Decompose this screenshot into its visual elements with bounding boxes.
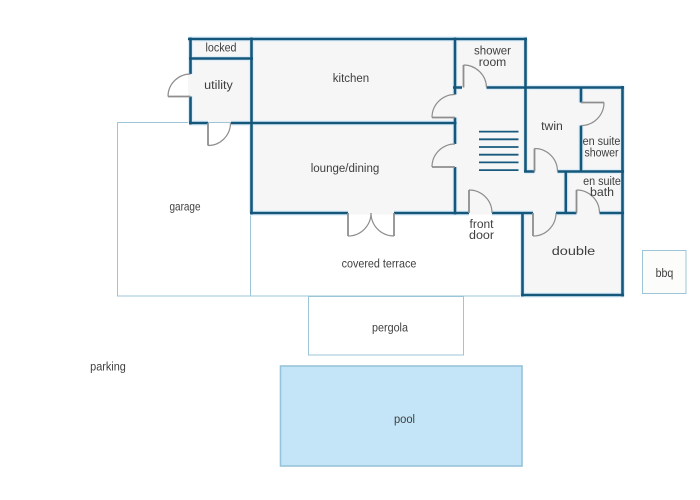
svg-text:pool: pool <box>394 412 415 426</box>
svg-text:bbq: bbq <box>656 266 674 280</box>
svg-text:bath: bath <box>590 185 614 199</box>
svg-text:twin: twin <box>541 119 563 133</box>
svg-text:garage: garage <box>170 200 201 214</box>
svg-text:door: door <box>469 228 494 242</box>
svg-text:parking: parking <box>90 360 126 374</box>
svg-text:room: room <box>479 55 507 69</box>
svg-text:covered terrace: covered terrace <box>342 257 417 271</box>
svg-text:utility: utility <box>204 78 234 92</box>
svg-text:lounge/dining: lounge/dining <box>311 161 380 175</box>
svg-text:shower: shower <box>585 146 619 160</box>
svg-text:locked: locked <box>206 41 237 55</box>
svg-text:pergola: pergola <box>372 321 408 335</box>
svg-text:double: double <box>552 244 596 258</box>
svg-text:kitchen: kitchen <box>333 71 369 85</box>
